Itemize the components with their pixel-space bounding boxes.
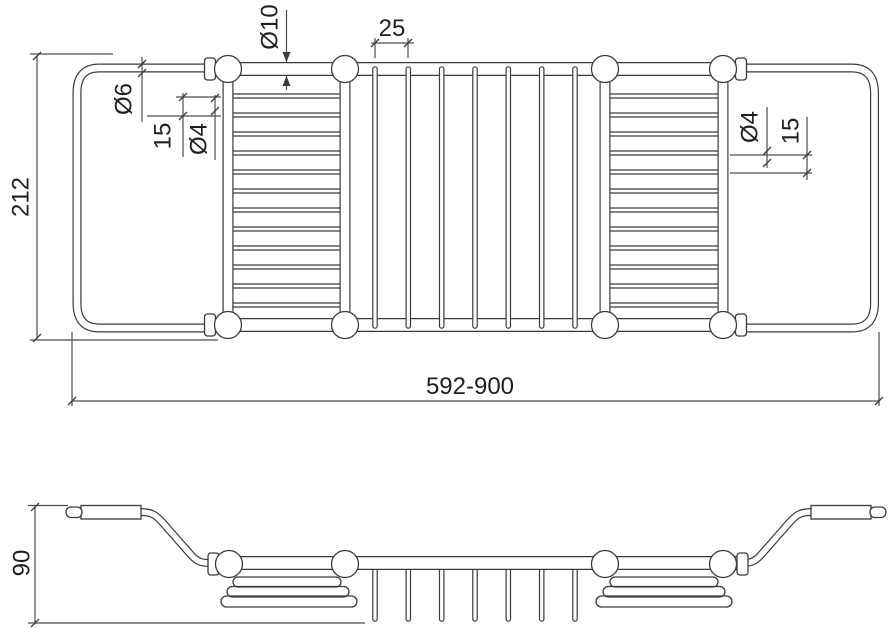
dim-label-mid-wire-spacing: 25 <box>379 15 406 42</box>
dim-label-left-wire-spacing: 15 <box>150 123 177 150</box>
left-basket-side <box>221 577 357 607</box>
right-rack-wires <box>607 96 721 305</box>
dim-label-rail-diameter: Ø10 <box>257 4 284 49</box>
dim-label-right-wire-spacing: 15 <box>778 118 805 145</box>
drawing-canvas: 212 592-900 Ø10 25 Ø6 15 Ø4 Ø4 15 90 <box>0 0 891 629</box>
dim-label-right-wire-diameter: Ø4 <box>737 111 764 143</box>
dimension-lines <box>28 10 879 623</box>
dimensions: 212 592-900 Ø10 25 Ø6 15 Ø4 Ø4 15 90 <box>8 4 884 627</box>
dim-label-handle-tube-diameter: Ø6 <box>111 83 138 115</box>
dim-label-left-wire-diameter: Ø4 <box>186 123 213 155</box>
side-view <box>66 506 886 620</box>
right-handle-side <box>742 512 812 563</box>
right-basket-side <box>596 577 732 607</box>
left-grip <box>66 506 141 520</box>
right-handle <box>744 68 875 328</box>
dim-label-overall-depth: 212 <box>8 177 35 217</box>
middle-wires <box>375 69 575 326</box>
left-rack-wires <box>230 96 343 305</box>
dim-label-length-range: 592-900 <box>426 373 514 400</box>
bath-rack-technical-drawing: 212 592-900 Ø10 25 Ø6 15 Ø4 Ø4 15 90 <box>0 0 891 629</box>
left-handle-side <box>140 512 210 563</box>
dim-label-side-height: 90 <box>9 550 36 577</box>
side-prongs <box>375 563 575 619</box>
plan-view <box>77 56 875 339</box>
right-grip <box>811 506 886 520</box>
